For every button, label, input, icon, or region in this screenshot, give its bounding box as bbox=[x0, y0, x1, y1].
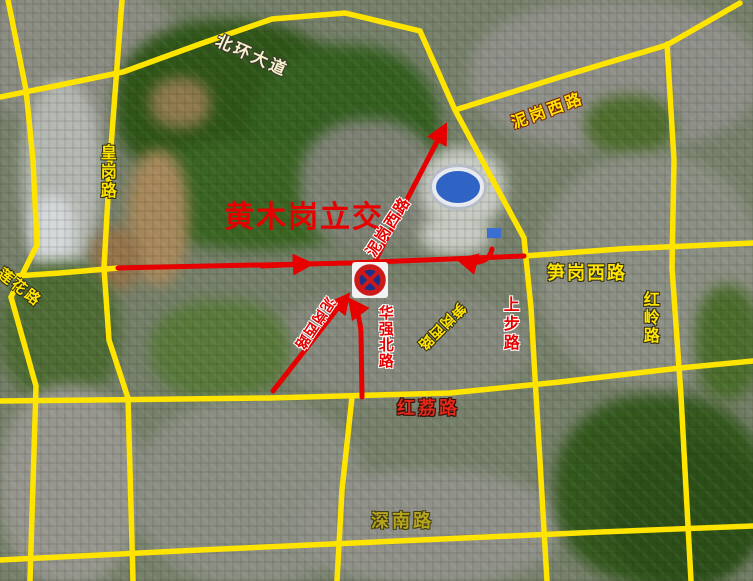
road-label-nigang-yellow: 泥岗西路 bbox=[509, 90, 586, 132]
road-label-hongli: 红荔路 bbox=[397, 400, 460, 419]
road-label-sungang-flipped: 笋岗西路 bbox=[415, 300, 468, 353]
road-label-beihuan: 北环大道 bbox=[213, 32, 291, 80]
road-label-huanggang: 皇岗路 bbox=[98, 144, 115, 201]
road-label-shennan: 深南路 bbox=[371, 513, 434, 532]
satellite-map: 北环大道 皇岗路 莲花路 黄木岗立交 泥岗西路 泥岗西路 笋岗西路 笋岗西路 红… bbox=[0, 0, 753, 581]
road-label-shangbu: 上步路 bbox=[501, 296, 518, 353]
road-label-lianhua: 莲花路 bbox=[0, 266, 44, 310]
road-labels: 北环大道 皇岗路 莲花路 黄木岗立交 泥岗西路 泥岗西路 笋岗西路 笋岗西路 红… bbox=[0, 0, 753, 581]
road-label-hongling: 红岭路 bbox=[641, 291, 658, 345]
road-label-sungang: 笋岗西路 bbox=[547, 265, 627, 284]
road-label-huaqiangbei: 华强北路 bbox=[377, 305, 393, 369]
interchange-title: 黄木岗立交 bbox=[224, 202, 384, 234]
road-label-nigang-flipped: 泥岗西路 bbox=[291, 294, 337, 352]
